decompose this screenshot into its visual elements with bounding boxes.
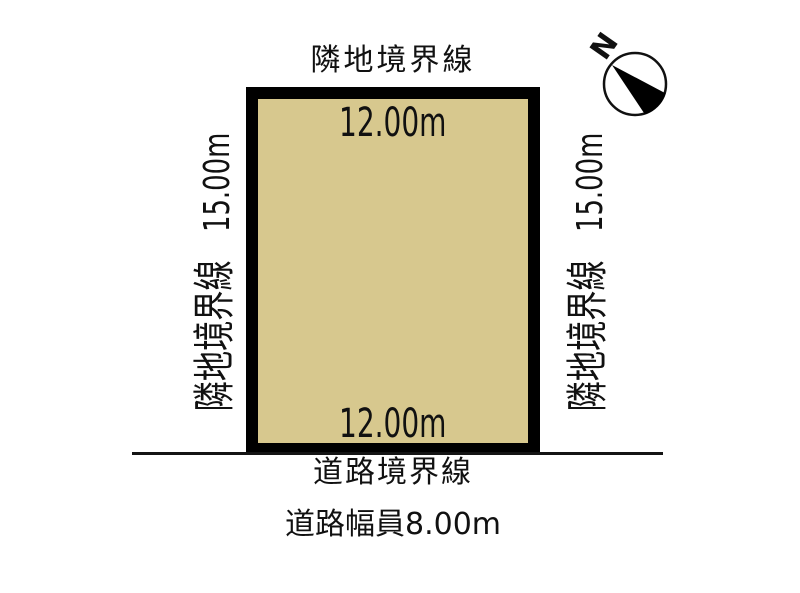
left-boundary-text: 隣地境界線 <box>190 260 239 411</box>
right-dimension-value: 15.00m <box>570 133 611 232</box>
road-boundary-label: 道路境界線 <box>246 456 540 490</box>
top-dimension-value: 12.00m <box>339 103 446 143</box>
bottom-dimension-value: 12.00m <box>339 404 446 444</box>
top-boundary-label: 隣地境界線 <box>246 44 540 78</box>
left-dimension-value: 15.00m <box>197 133 238 232</box>
road-width-label: 道路幅員8.00m <box>196 508 590 542</box>
right-boundary-text: 隣地境界線 <box>563 260 612 411</box>
top-dimension: 12.00m <box>246 103 540 151</box>
right-boundary-label: 隣地境界線 15.00m <box>566 121 610 423</box>
left-boundary-label: 隣地境界線 15.00m <box>193 121 237 423</box>
land-plot-diagram: N 隣地境界線 12.00m 12.00m 隣地境界線 15.00m 隣地境界線… <box>0 0 800 593</box>
bottom-dimension: 12.00m <box>246 404 540 452</box>
